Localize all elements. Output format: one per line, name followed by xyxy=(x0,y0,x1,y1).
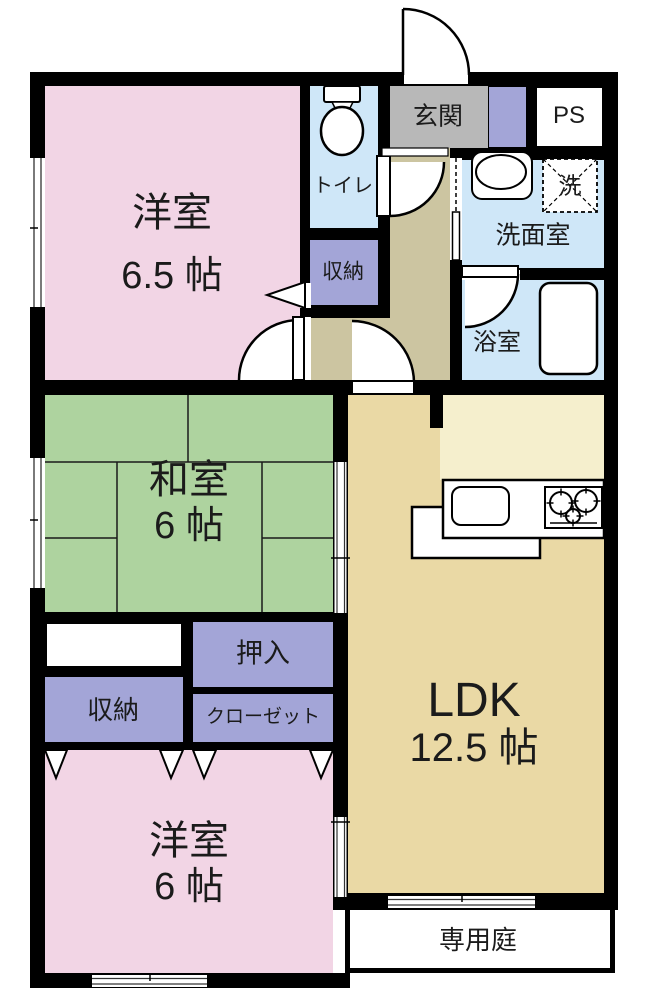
washitsu-size: 6 帖 xyxy=(154,507,224,545)
bedroom1-size: 6.5 帖 xyxy=(121,257,222,295)
bathroom-label: 浴室 xyxy=(473,331,521,355)
toilet-label: トイレ xyxy=(313,176,373,196)
wall-top xyxy=(30,72,618,86)
ps-label: PS xyxy=(553,104,585,128)
wall-washitsu-bottom xyxy=(30,612,348,622)
wall-toilet-right-b xyxy=(378,216,390,305)
wall-closet-right xyxy=(333,612,348,750)
bedroom2-size: 6 帖 xyxy=(154,868,224,906)
ldk-size: 12.5 帖 xyxy=(410,728,539,768)
shoe-cabinet xyxy=(488,86,527,148)
wall-kitchen-stub xyxy=(430,395,443,428)
genkan-label: 玄関 xyxy=(413,105,463,130)
wall-whitebox-storage xyxy=(45,668,183,677)
wall-toilet-right-a xyxy=(378,86,390,156)
washitsu-label: 和室 xyxy=(149,460,229,500)
wall-genkan-washroom xyxy=(450,148,604,160)
storage-bedroom2-label: 収納 xyxy=(87,697,139,723)
storage-whitebox xyxy=(45,622,183,668)
garden-label: 専用庭 xyxy=(439,927,517,953)
bedroom1-label: 洋室 xyxy=(132,193,212,233)
storage-hall-label: 収納 xyxy=(322,262,364,283)
room-toilet xyxy=(310,86,378,228)
wall-storagehall-bottom xyxy=(300,305,390,318)
wall-ldk-left-upper xyxy=(333,380,348,632)
floorplan: 洋室 6.5 帖 トイレ 玄関 PS 洗面室 洗 浴室 収納 和室 6 帖 押入… xyxy=(0,0,660,1000)
wall-bottom xyxy=(30,973,350,988)
closet-label: クローゼット xyxy=(206,708,320,727)
washroom-label: 洗面室 xyxy=(495,224,570,249)
kitchen-zone xyxy=(440,395,604,480)
wall-mid-horizontal xyxy=(30,380,604,395)
wall-shoebox-ps xyxy=(527,86,537,148)
oshiire-label: 押入 xyxy=(236,641,290,668)
ldk-label: LDK xyxy=(427,677,520,725)
wall-closet-bottom xyxy=(30,742,348,750)
bedroom2-label: 洋室 xyxy=(149,821,229,861)
wall-oshiire-closet xyxy=(193,687,333,694)
wall-closet-mid xyxy=(183,622,193,742)
wall-toilet-bottom xyxy=(300,228,390,240)
wall-washroom-bathroom xyxy=(450,268,604,280)
wall-bedroom2-right xyxy=(333,750,348,910)
wall-left xyxy=(30,72,45,988)
room-washitsu xyxy=(45,395,333,612)
wall-ldk-bottom xyxy=(333,893,604,910)
washer-label: 洗 xyxy=(559,175,582,198)
room-washroom xyxy=(462,160,604,268)
wall-right xyxy=(604,72,618,910)
hallway-lower xyxy=(310,318,450,380)
